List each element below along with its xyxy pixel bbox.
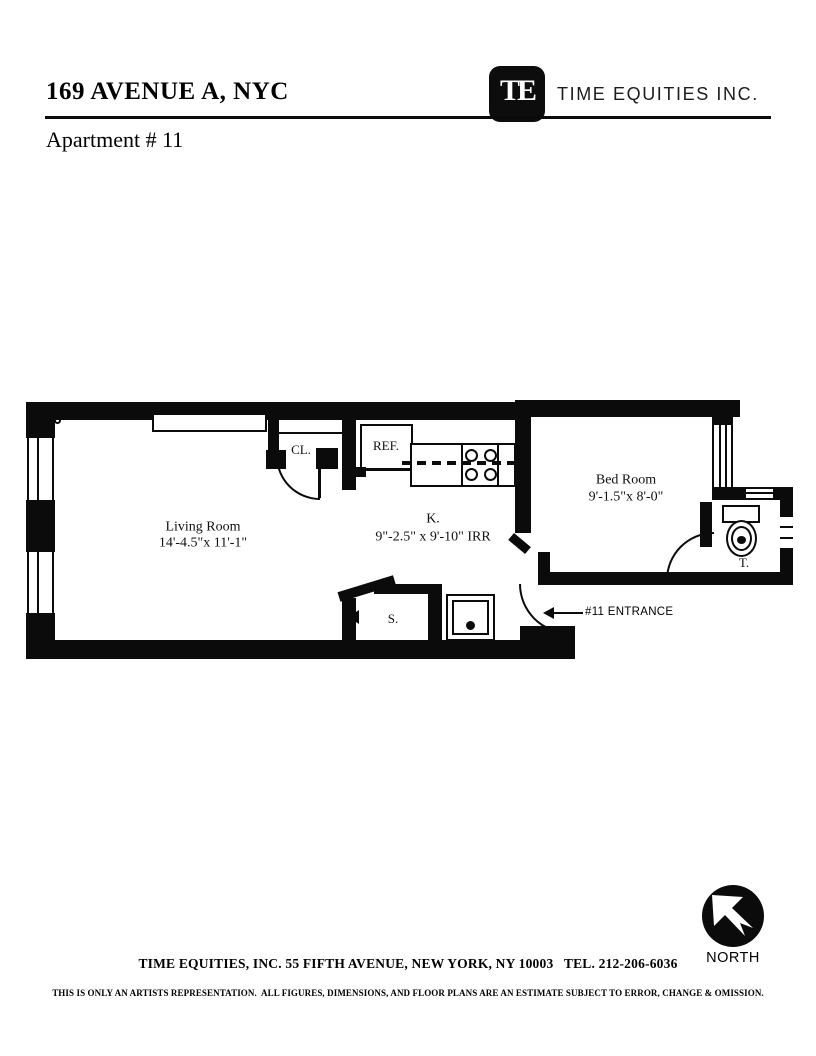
floorplan-page: 169 AVENUE A, NYC TE TIME EQUITIES INC. … (0, 0, 816, 1056)
kitchen-counter (410, 443, 516, 487)
window-line (37, 552, 39, 613)
kitchen-label: K. (426, 511, 440, 526)
wall-left-mid (26, 500, 55, 552)
counter-dashed-line (402, 461, 516, 465)
window-line (52, 552, 54, 613)
footer-disclaimer: THIS IS ONLY AN ARTISTS REPRESENTATION. … (0, 988, 816, 998)
wall-living-kitchen (342, 418, 356, 490)
counter-divider-line (461, 445, 463, 485)
refrigerator-label: REF. (373, 439, 399, 453)
toilet-label: T. (739, 556, 749, 570)
shower-door-marker (348, 610, 359, 624)
wall-wc-top-left (712, 487, 746, 500)
wc-door-arc (666, 532, 714, 580)
corner-marker (54, 417, 61, 424)
bedroom-dims: 9'-1.5"x 8'-0" (589, 489, 664, 504)
window-line (27, 438, 29, 500)
entrance-arrow-head (543, 607, 554, 619)
window-line (37, 438, 39, 500)
footer-contact: TIME EQUITIES, INC. 55 FIFTH AVENUE, NEW… (0, 956, 816, 972)
window-line (27, 552, 29, 613)
entrance-label: #11 ENTRANCE (585, 606, 673, 618)
window-bedroom-right (712, 425, 733, 488)
wall-left-corner (26, 402, 55, 438)
sink-drain (466, 621, 475, 630)
shower-label: S. (388, 612, 398, 626)
window-line (780, 526, 793, 528)
window-line (746, 492, 773, 494)
window-wc-top (746, 487, 773, 500)
living-room-label: Living Room (165, 519, 240, 534)
wall-top-bedroom (515, 400, 740, 417)
wall-bottom-main (26, 640, 575, 659)
living-room-dims: 14'-4.5"x 11'-1" (159, 535, 247, 550)
wall-recess (152, 413, 267, 432)
kitchen-dims: 9"-2.5" x 9'-10" IRR (375, 529, 490, 544)
counter-divider-line (497, 445, 499, 485)
north-arrow-icon (701, 884, 765, 948)
wall-shower-right (428, 584, 442, 642)
closet-door-arc (276, 456, 320, 500)
floor-plan: Living Room 14'-4.5"x 11'-1" CL. REF. K.… (0, 0, 816, 1056)
closet-rod-line (279, 432, 342, 434)
stove-burner (484, 468, 497, 481)
window-line (780, 537, 793, 539)
north-compass-icon (701, 884, 765, 948)
window-left-2 (26, 552, 55, 613)
counter-tick (356, 467, 366, 477)
wall-bedroom-stub (538, 552, 550, 585)
wall-kitchen-bedroom (515, 400, 531, 533)
window-left-1 (26, 438, 55, 500)
wall-closet-left (268, 418, 279, 454)
window-wc-right (780, 517, 793, 548)
stove-burner (465, 468, 478, 481)
window-line (725, 425, 727, 488)
window-line (719, 425, 721, 488)
entrance-door-leaf (508, 533, 531, 554)
bedroom-label: Bed Room (596, 472, 656, 487)
closet-label: CL. (291, 443, 311, 457)
entrance-arrow-line (553, 612, 583, 614)
window-line (52, 438, 54, 500)
toilet-drain (737, 536, 746, 544)
